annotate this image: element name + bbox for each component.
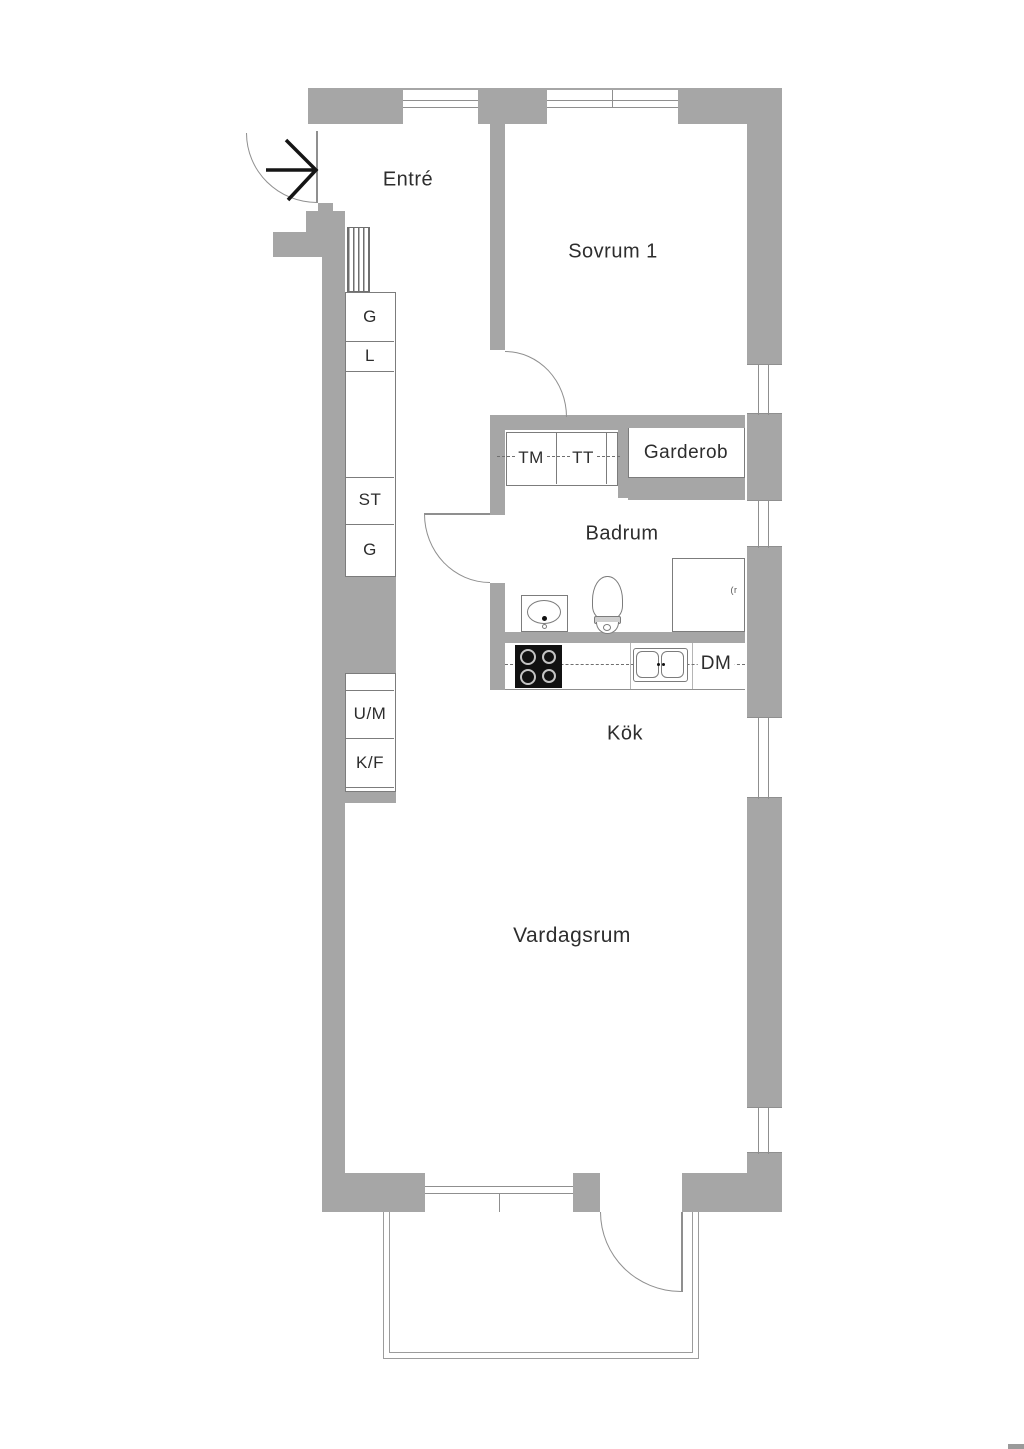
window-right-2 [747, 500, 782, 547]
window-right-4 [747, 1107, 782, 1153]
watermark-mark [1008, 1444, 1024, 1449]
label-dm: DM [698, 653, 735, 675]
appliance-label-kf: K/F [356, 753, 384, 773]
shaft-hatch [347, 227, 370, 292]
wall-tt-garderob-divider [618, 430, 628, 498]
wall-bottom-mid [573, 1173, 600, 1212]
washbasin-icon [521, 595, 568, 632]
room-label-garderob: Garderob [644, 442, 728, 464]
window-right-1 [747, 364, 782, 414]
kitchen-sink-icon [633, 648, 688, 682]
room-label-sovrum1: Sovrum 1 [568, 241, 658, 264]
shower-drain-mark: (r [731, 585, 738, 595]
closet-label-g1: G [363, 307, 377, 327]
label-tt: TT [570, 448, 596, 468]
wall-bottom-right [682, 1173, 782, 1212]
balcony-inner-rail [389, 1212, 693, 1353]
room-label-vardagsrum: Vardagsrum [513, 924, 631, 948]
wall-top [308, 88, 782, 124]
floorplan-canvas: G L ST G U/M K/F TM TT Garderob Badrum (… [0, 0, 1024, 1449]
wall-hall-bedroom [490, 124, 505, 350]
closet-column [345, 292, 396, 577]
bathroom-door-arc [424, 514, 490, 583]
toilet-icon [590, 576, 626, 634]
label-tm: TM [516, 448, 546, 468]
entry-arrow-icon [258, 128, 322, 212]
window-right-3 [747, 717, 782, 798]
wall-bath-left-upper [490, 417, 505, 515]
window-bottom [425, 1173, 573, 1212]
room-label-badrum: Badrum [585, 523, 658, 546]
room-label-kok: Kök [607, 723, 643, 746]
wall-entry-step-block [306, 211, 345, 257]
window-top-1 [403, 90, 478, 124]
closet-label-g2: G [363, 540, 377, 560]
wall-bottom-left [322, 1173, 425, 1212]
closet-label-l: L [365, 346, 375, 366]
room-label-entre: Entré [383, 169, 433, 192]
wall-closet-chunk [345, 577, 396, 673]
stove-icon [515, 645, 562, 688]
wall-garderob-bottom [628, 477, 745, 500]
shower-icon [672, 558, 745, 632]
window-top-2 [547, 90, 678, 124]
closet-label-st: ST [359, 490, 382, 510]
wall-kitchen-stub [345, 792, 396, 803]
wall-left [322, 257, 345, 1212]
wall-right [747, 124, 782, 1212]
bedroom-door-arc [505, 351, 567, 417]
appliance-label-um: U/M [354, 704, 387, 724]
appliance-column [345, 673, 396, 792]
wall-entry-step-wing [273, 232, 308, 257]
